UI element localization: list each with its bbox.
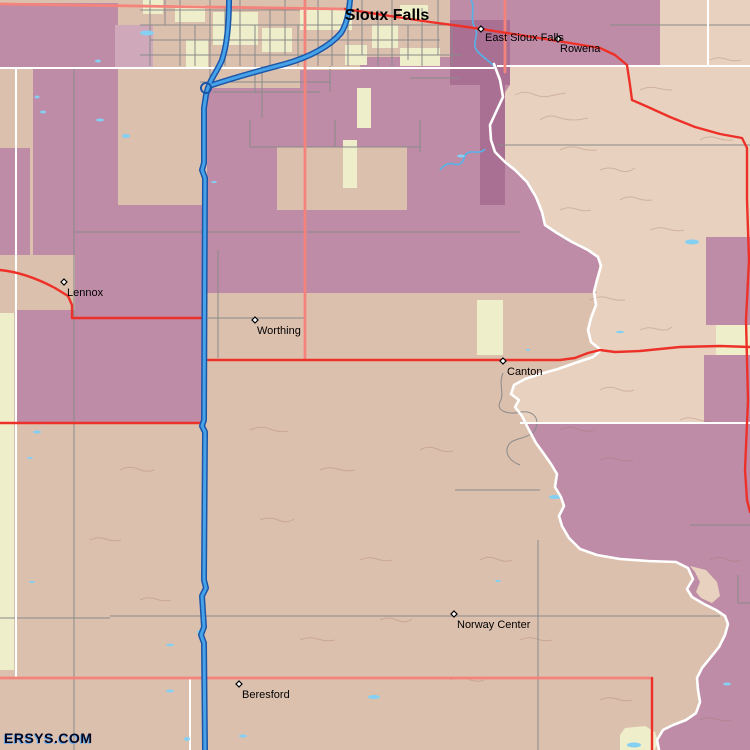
watermark: ERSYS.COM bbox=[4, 730, 93, 746]
place-label-worthing: Worthing bbox=[257, 325, 301, 337]
census-region bbox=[704, 355, 750, 423]
place-label-norway-center: Norway Center bbox=[457, 619, 531, 631]
map-viewport[interactable]: Sioux Falls East Sioux Falls Rowena Lenn… bbox=[0, 0, 750, 750]
place-label-lennox: Lennox bbox=[67, 287, 104, 299]
census-region-hole bbox=[277, 147, 407, 210]
census-region bbox=[450, 0, 505, 20]
map-canvas[interactable]: Sioux Falls East Sioux Falls Rowena Lenn… bbox=[0, 0, 750, 750]
census-region bbox=[0, 3, 118, 68]
place-label-sioux-falls: Sioux Falls bbox=[345, 7, 430, 24]
place-label-rowena: Rowena bbox=[560, 43, 601, 55]
census-region bbox=[706, 237, 750, 325]
place-label-canton: Canton bbox=[507, 366, 542, 378]
place-label-beresford: Beresford bbox=[242, 689, 290, 701]
place-label-east-sioux-falls: East Sioux Falls bbox=[485, 32, 564, 44]
